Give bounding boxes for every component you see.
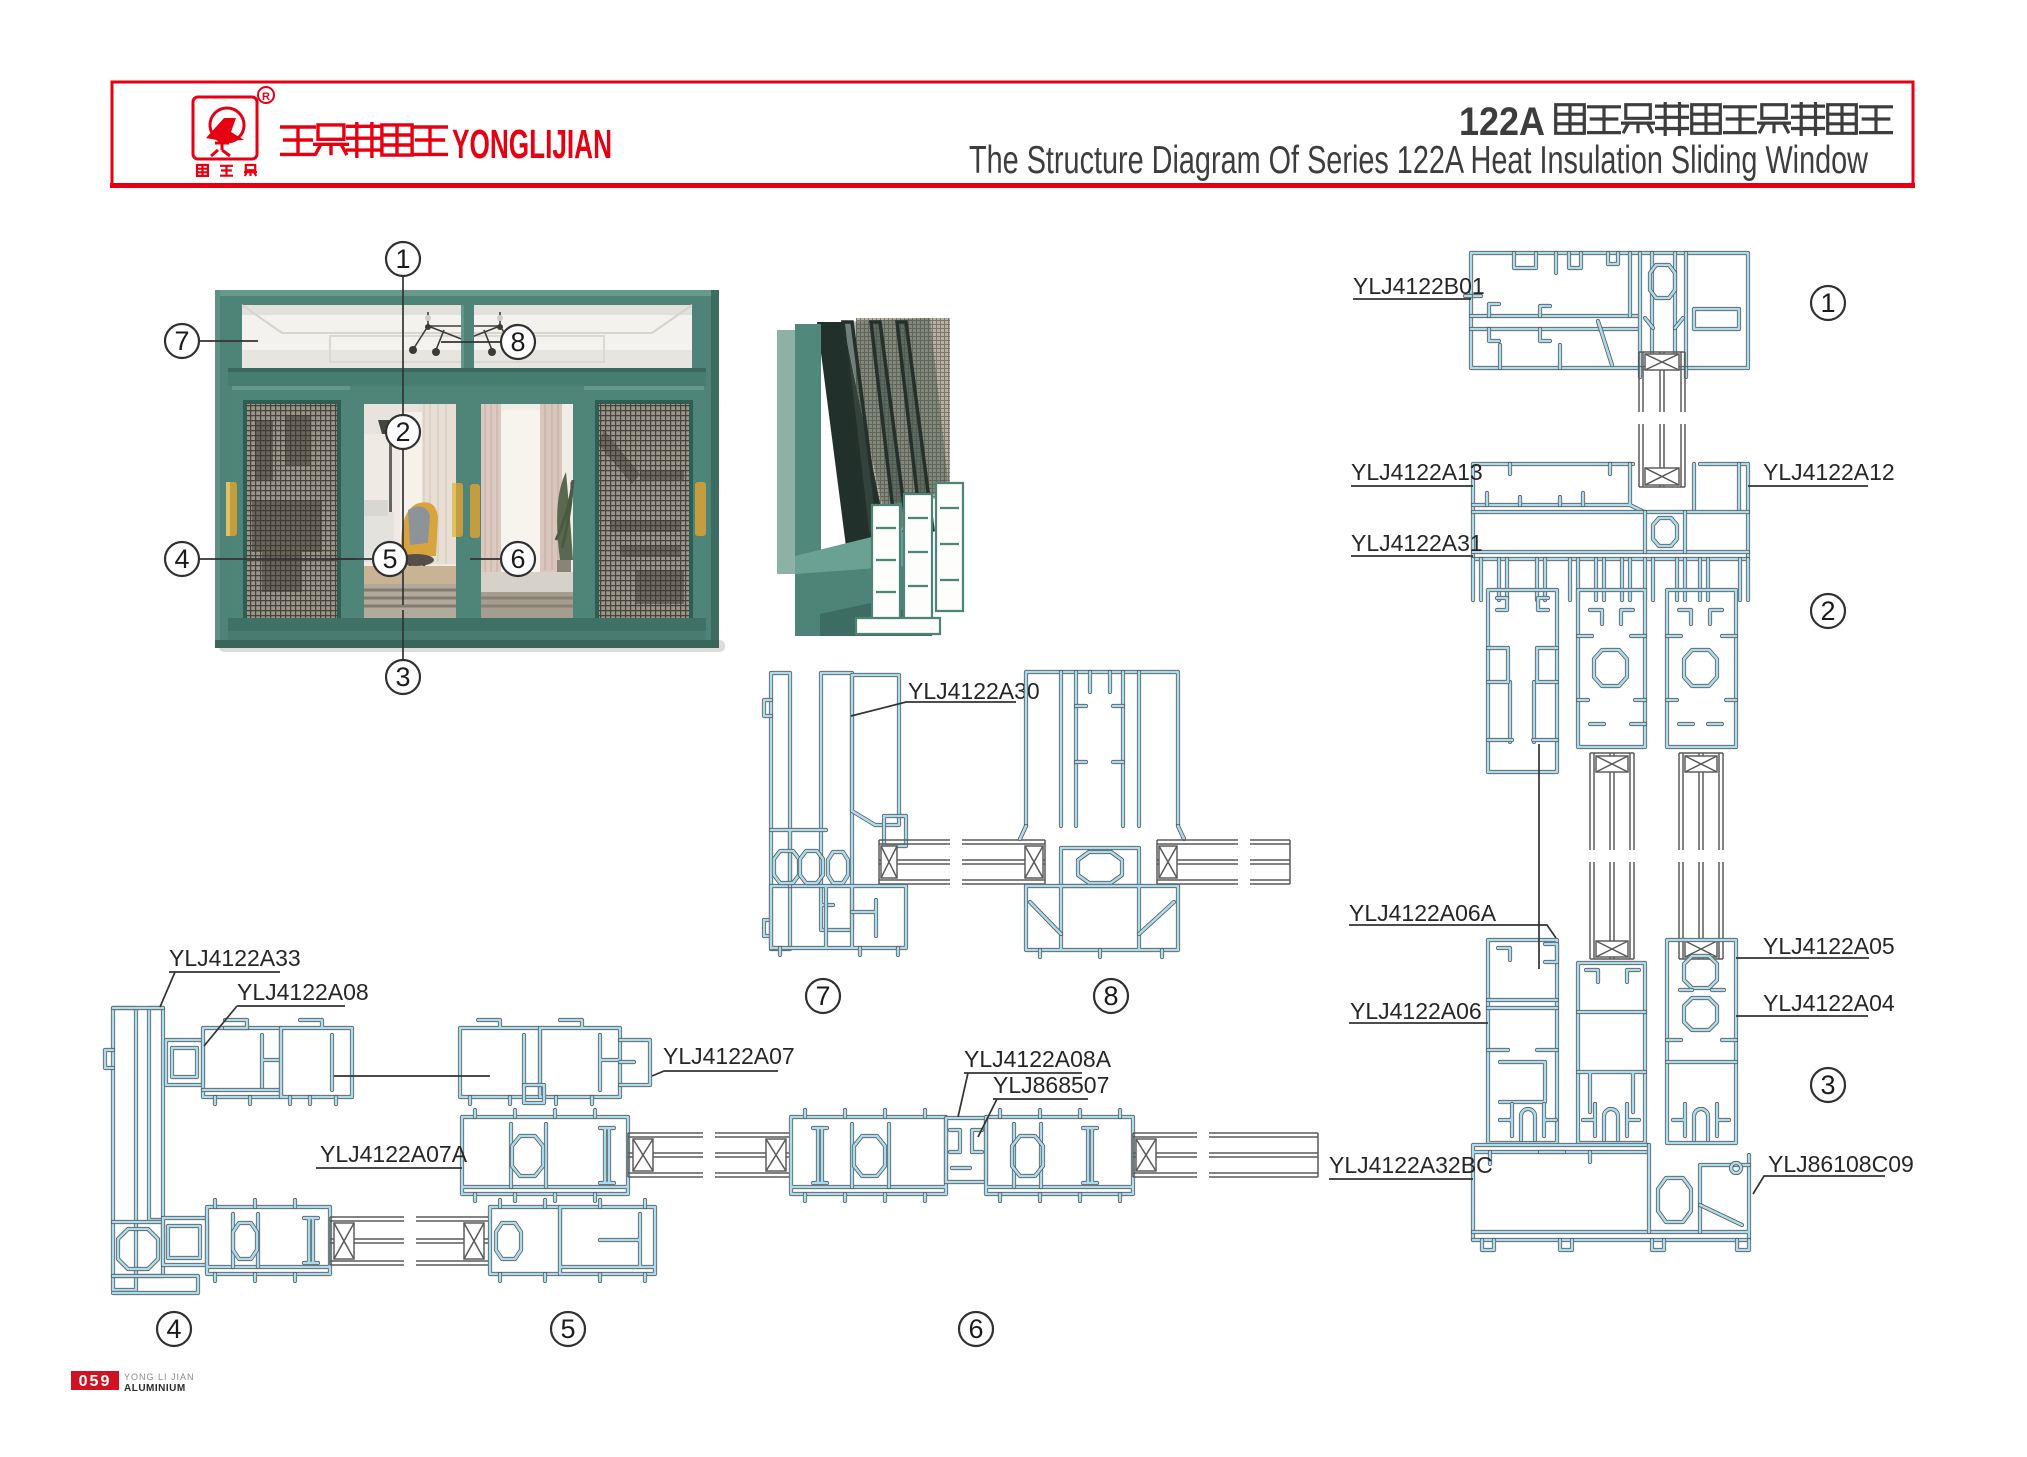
svg-text:YLJ4122A06: YLJ4122A06	[1350, 998, 1482, 1024]
svg-text:8: 8	[1103, 981, 1118, 1011]
svg-text:5: 5	[382, 544, 397, 574]
svg-text:6: 6	[968, 1314, 983, 1344]
svg-text:1: 1	[395, 244, 410, 274]
svg-text:059: 059	[79, 1373, 112, 1390]
svg-text:2: 2	[395, 417, 410, 447]
svg-text:YLJ4122A07A: YLJ4122A07A	[320, 1141, 468, 1167]
svg-text:YLJ4122A32BC: YLJ4122A32BC	[1329, 1152, 1493, 1178]
svg-text:8: 8	[510, 327, 525, 357]
svg-text:YLJ4122A33: YLJ4122A33	[169, 945, 301, 971]
svg-text:3: 3	[395, 662, 410, 692]
svg-text:7: 7	[815, 981, 830, 1011]
svg-text:YLJ4122A06A: YLJ4122A06A	[1349, 900, 1497, 926]
svg-text:R: R	[262, 91, 270, 103]
svg-text:7: 7	[174, 326, 189, 356]
svg-text:3: 3	[1820, 1070, 1835, 1100]
svg-text:1: 1	[1820, 288, 1835, 318]
svg-text:YLJ4122A31: YLJ4122A31	[1351, 530, 1483, 556]
svg-text:YLJ4122A08: YLJ4122A08	[237, 979, 369, 1005]
svg-text:YLJ4122A12: YLJ4122A12	[1763, 459, 1895, 485]
svg-text:5: 5	[560, 1314, 575, 1344]
svg-text:YONGLIJIAN: YONGLIJIAN	[452, 121, 612, 167]
svg-text:YLJ86108C09: YLJ86108C09	[1768, 1151, 1914, 1177]
svg-text:The Structure Diagram Of Serie: The Structure Diagram Of Series 122A Hea…	[969, 139, 1869, 182]
svg-text:4: 4	[166, 1314, 181, 1344]
svg-text:2: 2	[1820, 596, 1835, 626]
svg-text:YLJ4122A07: YLJ4122A07	[663, 1043, 795, 1069]
svg-text:YLJ4122A30: YLJ4122A30	[908, 678, 1040, 704]
svg-text:ALUMINIUM: ALUMINIUM	[124, 1383, 186, 1394]
svg-text:YLJ4122A08A: YLJ4122A08A	[964, 1046, 1112, 1072]
svg-text:YLJ868507: YLJ868507	[993, 1072, 1109, 1098]
svg-text:YLJ4122A04: YLJ4122A04	[1763, 990, 1895, 1016]
svg-text:YLJ4122A13: YLJ4122A13	[1351, 459, 1483, 485]
svg-text:122A: 122A	[1459, 100, 1545, 144]
svg-text:4: 4	[174, 544, 189, 574]
svg-text:YONG LI JIAN: YONG LI JIAN	[124, 1372, 195, 1382]
svg-text:6: 6	[510, 544, 525, 574]
svg-text:YLJ4122B01: YLJ4122B01	[1353, 273, 1485, 299]
svg-text:YLJ4122A05: YLJ4122A05	[1763, 933, 1895, 959]
